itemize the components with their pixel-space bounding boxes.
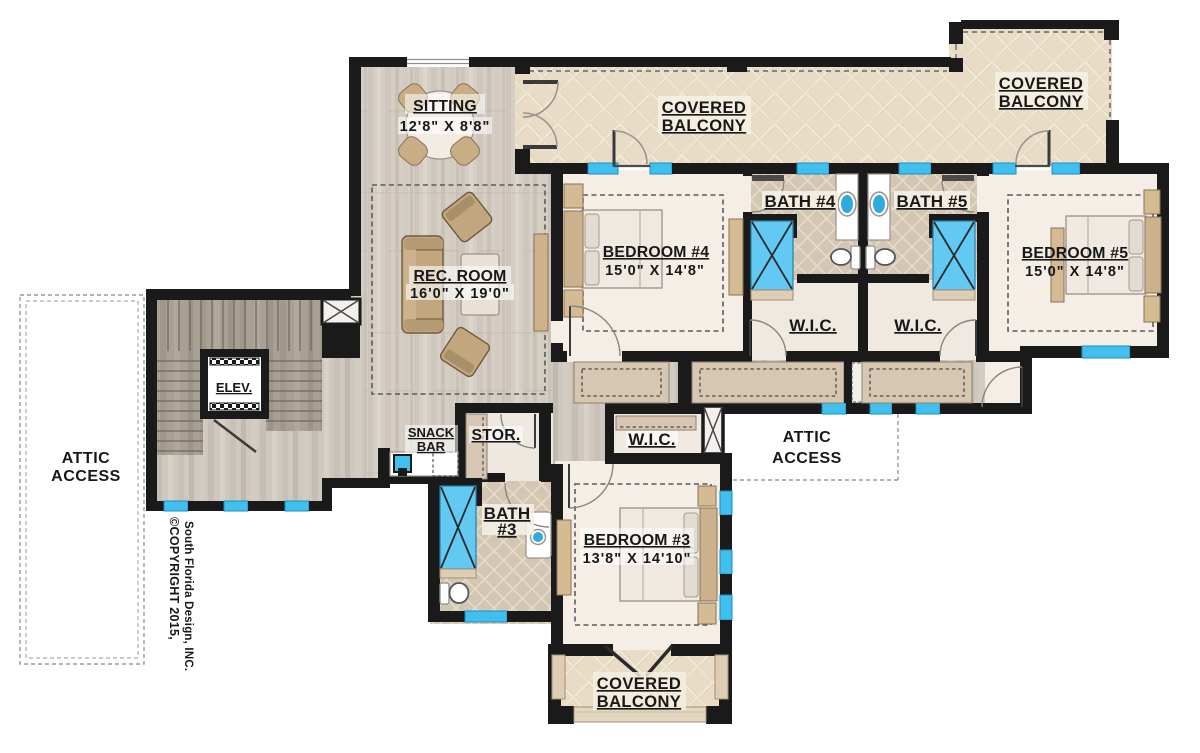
svg-text:13'8" X 14'10": 13'8" X 14'10"	[583, 551, 692, 567]
svg-text:COVERED: COVERED	[662, 99, 746, 117]
svg-text:#3: #3	[497, 520, 516, 539]
svg-text:W.I.C.: W.I.C.	[894, 316, 941, 335]
svg-text:BALCONY: BALCONY	[597, 693, 681, 711]
svg-text:ELEV.: ELEV.	[216, 380, 252, 395]
svg-text:REC. ROOM: REC. ROOM	[413, 268, 506, 285]
svg-text:©COPYRIGHT 2015,: ©COPYRIGHT 2015,	[167, 517, 181, 640]
svg-text:15'0" X 14'8": 15'0" X 14'8"	[605, 263, 705, 279]
svg-text:STOR.: STOR.	[472, 427, 521, 444]
svg-text:16'0" X 19'0": 16'0" X 19'0"	[410, 286, 510, 302]
svg-text:ATTIC: ATTIC	[62, 450, 110, 467]
svg-text:BEDROOM #3: BEDROOM #3	[584, 532, 690, 549]
svg-text:BATH #5: BATH #5	[897, 192, 968, 211]
svg-text:COVERED: COVERED	[597, 675, 681, 693]
svg-text:BALCONY: BALCONY	[662, 117, 746, 135]
svg-text:12'8" X 8'8": 12'8" X 8'8"	[400, 119, 491, 135]
svg-text:ACCESS: ACCESS	[51, 468, 121, 485]
svg-text:SNACK: SNACK	[408, 425, 455, 440]
svg-text:15'0" X 14'8": 15'0" X 14'8"	[1025, 264, 1125, 280]
svg-text:BATH #4: BATH #4	[765, 192, 836, 211]
svg-text:BALCONY: BALCONY	[999, 93, 1083, 111]
svg-text:W.I.C.: W.I.C.	[628, 430, 675, 449]
svg-text:ATTIC: ATTIC	[783, 429, 831, 446]
svg-text:SITTING: SITTING	[413, 98, 477, 115]
svg-text:BEDROOM #4: BEDROOM #4	[603, 244, 709, 261]
svg-text:W.I.C.: W.I.C.	[789, 316, 836, 335]
svg-text:BEDROOM #5: BEDROOM #5	[1022, 245, 1128, 262]
svg-text:BAR: BAR	[417, 439, 446, 454]
svg-text:ACCESS: ACCESS	[772, 450, 842, 467]
svg-text:South Florida Design, INC.: South Florida Design, INC.	[182, 521, 194, 671]
svg-text:COVERED: COVERED	[999, 75, 1083, 93]
